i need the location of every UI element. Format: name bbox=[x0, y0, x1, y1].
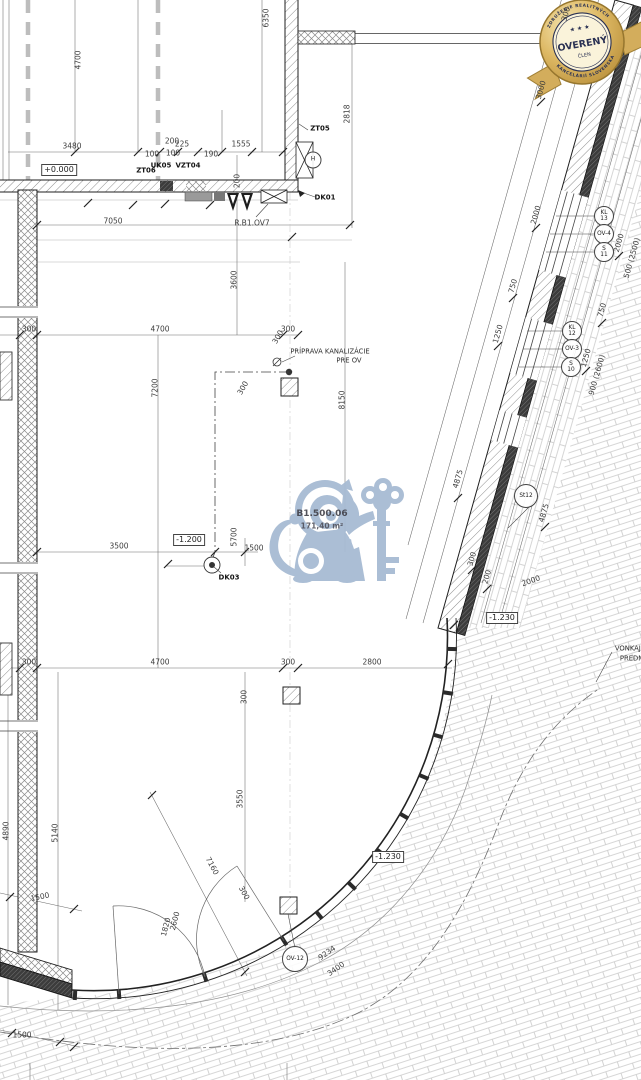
column bbox=[281, 378, 298, 396]
watermark-lion-icon bbox=[269, 478, 404, 583]
floor-plan-drawing: ZDRUŽENIE REALITNÝCH KANCELÁRIÍ SLOVENSK… bbox=[0, 0, 641, 1080]
structural-grid-lines bbox=[28, 0, 158, 333]
column bbox=[283, 687, 300, 704]
floor-plan-page: ZDRUŽENIE REALITNÝCH KANCELÁRIÍ SLOVENSK… bbox=[0, 0, 641, 1080]
column bbox=[280, 897, 297, 914]
